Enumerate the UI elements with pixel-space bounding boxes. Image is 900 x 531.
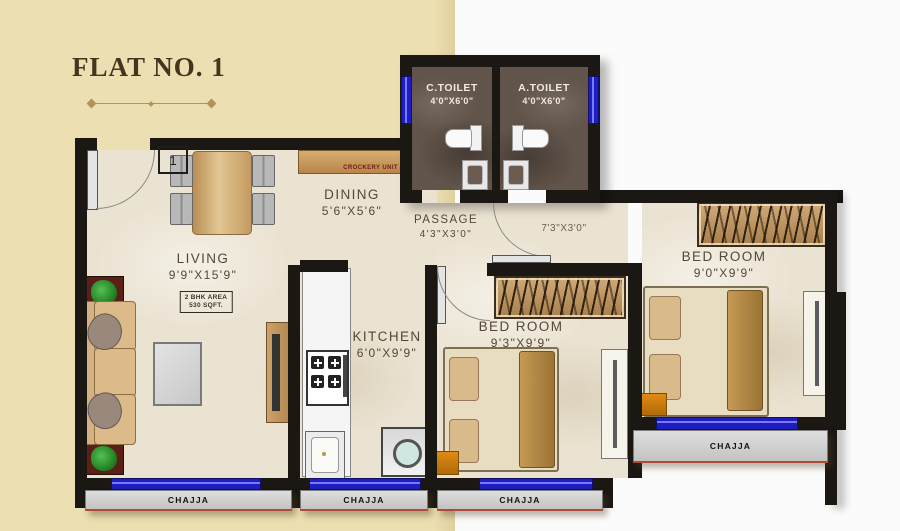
dining-chair <box>252 155 275 187</box>
basin-bowl <box>508 165 524 185</box>
room-dim: 6'0"X9'9" <box>352 346 421 362</box>
stove-burner <box>311 356 324 369</box>
kitchen-top-stub <box>300 260 348 272</box>
passage-label: PASSAGE 4'3"X3'0" <box>414 213 478 241</box>
toilet-bottom-wall <box>412 190 422 203</box>
area-note-line1: 2 BHK AREA <box>185 294 228 302</box>
room-name: KITCHEN <box>352 328 421 346</box>
bed-pillow <box>449 357 479 401</box>
entrance-door-number-badge: 1 <box>158 146 188 174</box>
bedroom1-top-wall <box>487 263 628 276</box>
wc-bowl <box>522 129 549 148</box>
dressing-mirror <box>613 360 617 448</box>
wall-segment <box>75 138 87 490</box>
room-name: PASSAGE <box>414 213 478 228</box>
stove-burner <box>311 375 324 388</box>
chajja-strip: CHAJJA <box>633 430 828 463</box>
basin-bowl <box>467 165 483 185</box>
room-name: C.TOILET <box>412 81 492 95</box>
kitchen-label: KITCHEN 6'0"X9'9" <box>352 328 421 361</box>
planter-box <box>84 441 124 475</box>
crockery-unit-label: CROCKERY UNIT <box>343 165 398 171</box>
bedroom1-window <box>480 479 592 489</box>
room-dim: 4'0"X6'0" <box>500 95 588 107</box>
room-name: A.TOILET <box>500 81 588 95</box>
crockery-unit: CROCKERY UNIT <box>298 150 402 174</box>
coffee-table <box>153 342 202 406</box>
wardrobe <box>494 276 626 319</box>
chajja-strip: CHAJJA <box>437 490 603 511</box>
bedroom2-top-wall <box>588 190 843 203</box>
stove <box>306 350 349 406</box>
area-note-line2: 530 SQFT. <box>185 302 228 310</box>
stove-knob-strip <box>343 355 347 397</box>
wardrobe <box>697 202 827 247</box>
dressing-mirror <box>815 301 819 386</box>
bed-blanket <box>519 351 555 468</box>
wash-basin <box>503 160 529 190</box>
dining-table <box>192 151 252 235</box>
chajja-label: CHAJJA <box>499 495 540 505</box>
area-note-box: 2 BHK AREA 530 SQFT. <box>180 291 233 313</box>
room-dim: 5'6"X5'6" <box>322 204 382 220</box>
bed <box>443 347 559 472</box>
dining-chair <box>252 193 275 225</box>
toilet-top-wall <box>400 55 600 67</box>
living-window <box>112 479 260 489</box>
toilet-divider-wall <box>492 67 500 190</box>
kitchen-window <box>310 479 420 489</box>
bedroom2-label: BED ROOM 9'0"X9'9" <box>682 248 767 281</box>
bed-blanket <box>727 290 763 411</box>
room-dim: 4'3"X3'0" <box>414 228 478 241</box>
washing-machine-drum <box>393 439 422 468</box>
c-toilet-vent-window <box>402 77 411 123</box>
corridor-dim-label: 7'3"X3'0" <box>541 222 586 235</box>
toilet-bottom-wall <box>460 190 508 203</box>
bedroom1-label: BED ROOM 9'3"X9'9" <box>479 318 564 351</box>
a-toilet-label: A.TOILET 4'0"X6'0" <box>500 81 588 107</box>
living-room-label: LIVING 9'9"X15'9" <box>169 250 237 283</box>
chajja-label: CHAJJA <box>710 441 751 451</box>
divider-diamond-center <box>148 101 154 107</box>
room-name: BED ROOM <box>479 318 564 336</box>
room-dim: 4'0"X6'0" <box>412 95 492 107</box>
chajja-strip: CHAJJA <box>300 490 428 511</box>
title-divider <box>88 99 216 108</box>
dining-room-label: DINING 5'6"X5'6" <box>322 186 382 219</box>
room-name: BED ROOM <box>682 248 767 266</box>
divider-diamond-left <box>87 99 97 109</box>
a-toilet-door-leaf <box>492 255 551 263</box>
wall-segment <box>75 138 97 150</box>
chajja-label: CHAJJA <box>343 495 384 505</box>
kitchen-right-wall <box>425 265 437 478</box>
wc-bowl <box>445 129 472 148</box>
room-dim: 9'0"X9'9" <box>682 266 767 282</box>
chajja-strip: CHAJJA <box>85 490 292 511</box>
tv-screen <box>272 334 280 411</box>
room-dim: 9'9"X15'9" <box>169 268 237 284</box>
sofa <box>83 301 135 443</box>
room-dim: 7'3"X3'0" <box>541 222 586 235</box>
dressing-unit <box>601 349 628 459</box>
bed-pillow <box>649 296 681 340</box>
room-name: LIVING <box>169 250 237 268</box>
bedroom2-right-wall-protrusion <box>835 292 846 430</box>
sink-drain <box>322 452 326 456</box>
toilet-bottom-wall <box>546 190 588 203</box>
sofa-seat <box>94 348 136 397</box>
page-title: FLAT NO. 1 <box>72 52 226 83</box>
toilet-block: C.TOILET 4'0"X6'0" A.TOILET 4'0"X6'0" <box>400 55 600 203</box>
a-toilet-vent-window <box>589 77 598 123</box>
stove-burner <box>328 356 341 369</box>
floor-plan-page: FLAT NO. 1 CROCKERY UNIT <box>0 0 900 531</box>
kitchen-sink <box>305 431 345 480</box>
chajja-label: CHAJJA <box>168 495 209 505</box>
divider-diamond-right <box>207 99 217 109</box>
bedroom2-window <box>657 418 797 429</box>
wash-basin <box>462 160 488 190</box>
room-name: DINING <box>322 186 382 204</box>
stove-burner <box>328 375 341 388</box>
nightstand <box>640 393 667 416</box>
kitchen-left-wall <box>288 265 300 478</box>
dining-chair <box>170 193 193 225</box>
plant <box>91 446 117 471</box>
door-number: 1 <box>169 153 176 168</box>
c-toilet-label: C.TOILET 4'0"X6'0" <box>412 81 492 107</box>
room-dim: 9'3"X9'9" <box>479 336 564 352</box>
